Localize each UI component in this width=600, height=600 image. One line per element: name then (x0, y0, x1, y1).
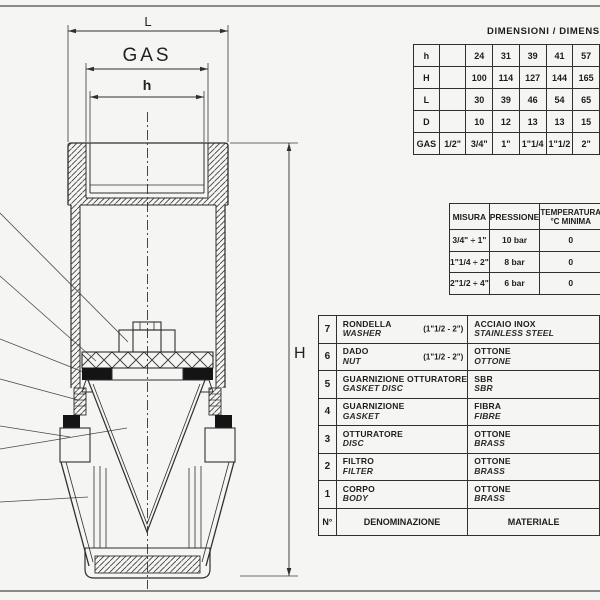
dimension-H: H (230, 143, 306, 576)
part-material: OTTONE BRASS (468, 426, 600, 454)
part-number: 2 (319, 453, 337, 481)
table-row: L 30 39 46 54 65 (414, 89, 600, 111)
dim-gas-label: GAS (122, 45, 171, 66)
threaded-port (86, 143, 208, 198)
parts-table: 7 RONDELLA WASHER (1"1/2 - 2") ACCIAIO I… (318, 315, 600, 536)
part-material: OTTONE OTTONE (468, 343, 600, 371)
table-row: 7 RONDELLA WASHER (1"1/2 - 2") ACCIAIO I… (319, 316, 600, 344)
table-row: D 10 12 13 13 15 (414, 111, 600, 133)
part-name: DADO NUT (1"1/2 - 2") (336, 343, 468, 371)
part-name: RONDELLA WASHER (1"1/2 - 2") (336, 316, 468, 344)
table-row: 6 DADO NUT (1"1/2 - 2") OTTONE OTTONE (319, 343, 600, 371)
part-material: ACCIAIO INOX STAINLESS STEEL (468, 316, 600, 344)
dimension-h: h (90, 77, 204, 142)
table-row: 4 GUARNIZIONE GASKET FIBRA FIBRE (319, 398, 600, 426)
dim-row-label: D (414, 111, 440, 133)
part-material: OTTONE BRASS (468, 453, 600, 481)
part-size-note: (1"1/2 - 2") (423, 325, 463, 334)
technical-drawing: L GAS h H (0, 0, 320, 600)
part-material: OTTONE BRASS (468, 481, 600, 509)
part-size-note: (1"1/2 - 2") (423, 352, 463, 361)
part-name: OTTURATORE DISC (336, 426, 468, 454)
table-row: 2"1/2 ÷ 4" 6 bar 0 (450, 273, 600, 295)
part-number: 6 (319, 343, 337, 371)
table-row: 2 FILTRO FILTER OTTONE BRASS (319, 453, 600, 481)
table-row: GAS 1/2" 3/4" 1" 1"1/4 1"1/2 2" (414, 133, 600, 155)
part-number: 1 (319, 481, 337, 509)
dim-h-label: h (143, 77, 152, 93)
footer-denominazione: DENOMINAZIONE (336, 508, 468, 536)
temperatura-header: TEMPERATURA °C MINIMA (540, 204, 600, 230)
dim-L-label: L (144, 14, 151, 29)
filter-cone (88, 380, 205, 532)
dim-row-label: GAS (414, 133, 440, 155)
gasket-disc (82, 352, 213, 368)
part-name: GUARNIZIONE GASKET (336, 398, 468, 426)
table-row: 3 OTTURATORE DISC OTTONE BRASS (319, 426, 600, 454)
pressione-header: PRESSIONE (489, 204, 540, 230)
part-number: 7 (319, 316, 337, 344)
table-row: H 100 114 127 144 165 (414, 67, 600, 89)
parts-table-footer: N° DENOMINAZIONE MATERIALE (319, 508, 600, 536)
table-row: h 24 31 39 41 57 (414, 45, 600, 67)
dim-row-label: L (414, 89, 440, 111)
part-material: FIBRA FIBRE (468, 398, 600, 426)
pressure-table-header: MISURA PRESSIONE TEMPERATURA °C MINIMA (450, 204, 600, 230)
part-number: 4 (319, 398, 337, 426)
dimension-gas: GAS (86, 45, 208, 142)
part-name: GUARNIZIONE OTTURATORE GASKET DISC (336, 371, 468, 399)
table-row: 5 GUARNIZIONE OTTURATORE GASKET DISC SBR… (319, 371, 600, 399)
part-name: FILTRO FILTER (336, 453, 468, 481)
part-number: 3 (319, 426, 337, 454)
footer-num: N° (319, 508, 337, 536)
hex-nut (119, 322, 175, 352)
pressure-table: MISURA PRESSIONE TEMPERATURA °C MINIMA 3… (449, 203, 600, 295)
dim-row-label: h (414, 45, 440, 67)
part-name: CORPO BODY (336, 481, 468, 509)
dim-H-label: H (294, 345, 306, 362)
table-row: 3/4" ÷ 1" 10 bar 0 (450, 230, 600, 252)
footer-materiale: MATERIALE (468, 508, 600, 536)
dimensions-table-title: DIMENSIONI / DIMENSIONS (487, 26, 600, 37)
dim-row-label: H (414, 67, 440, 89)
misura-header: MISURA (450, 204, 490, 230)
washer-cap (133, 322, 161, 330)
part-material: SBR SBR (468, 371, 600, 399)
part-number: 5 (319, 371, 337, 399)
table-row: 1 CORPO BODY OTTONE BRASS (319, 481, 600, 509)
table-row: 1"1/4 ÷ 2" 8 bar 0 (450, 251, 600, 273)
dimensions-table: h 24 31 39 41 57 H 100 114 127 144 165 L… (413, 44, 600, 155)
